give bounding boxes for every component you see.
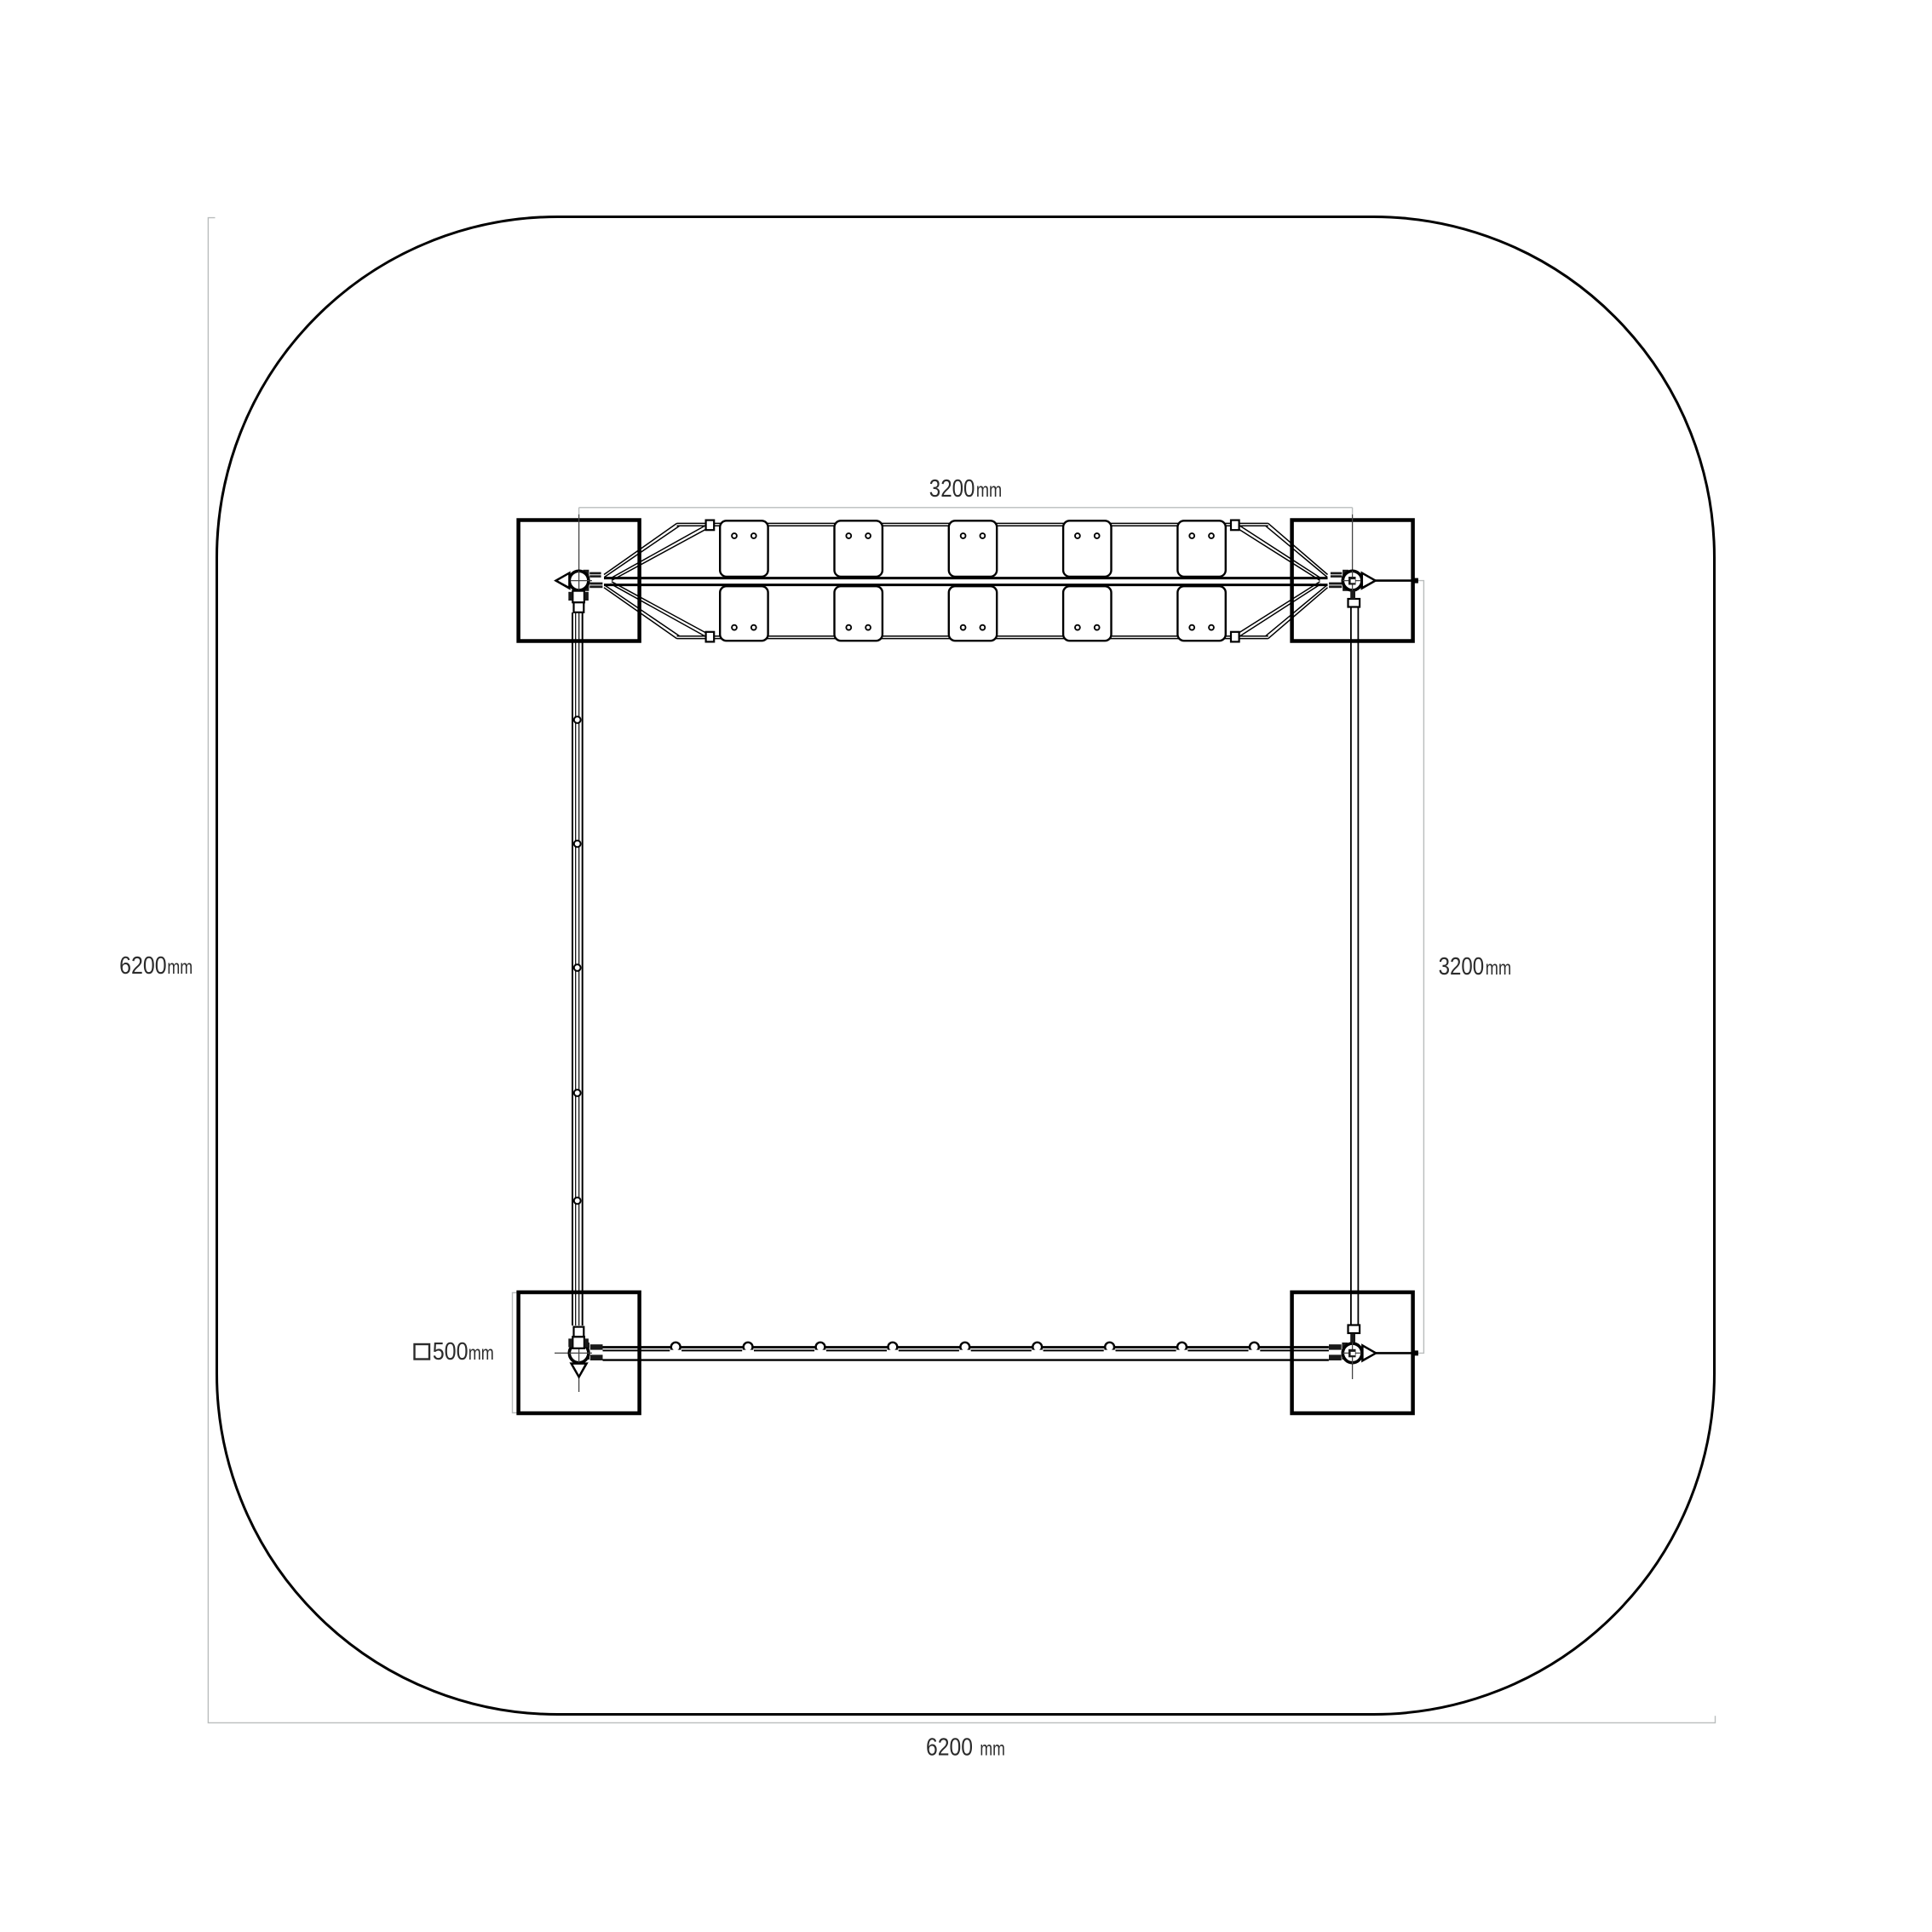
svg-text:mm: mm [976, 479, 1002, 501]
svg-text:mm: mm [469, 1342, 494, 1364]
svg-text:3200: 3200 [1439, 953, 1485, 980]
svg-text:mm: mm [980, 1738, 1005, 1760]
svg-text:mm: mm [1486, 957, 1511, 979]
svg-text:500: 500 [433, 1338, 469, 1366]
svg-text:6200: 6200 [926, 1734, 973, 1762]
svg-text:6200: 6200 [119, 952, 167, 980]
svg-text:mm: mm [167, 956, 193, 978]
svg-text:3200: 3200 [929, 475, 975, 503]
